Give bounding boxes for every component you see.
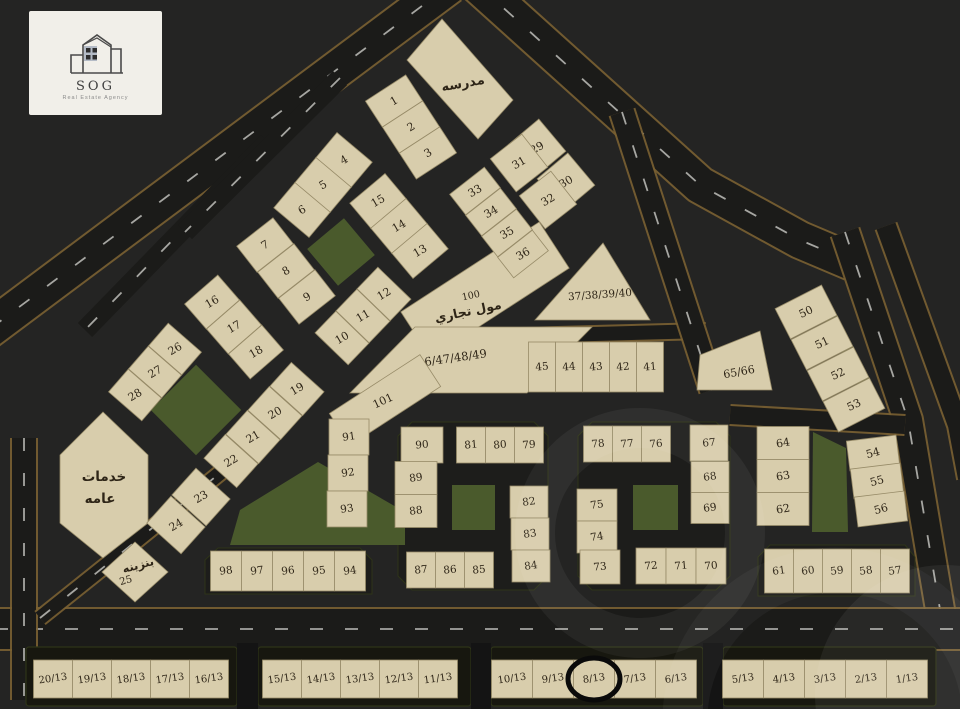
plot-label: 98 xyxy=(219,564,234,578)
road xyxy=(730,415,905,425)
park xyxy=(452,485,495,530)
plot-label: 45 xyxy=(535,360,549,373)
master-plan: مدرسه100مول تجاري46/47/48/4910137/38/39/… xyxy=(0,0,960,709)
plot-label: 44 xyxy=(562,360,577,373)
plot-label: 79 xyxy=(522,438,536,451)
plot-label: 88 xyxy=(409,504,424,518)
plot-label: 75 xyxy=(590,498,605,512)
plot-label: 64 xyxy=(775,435,791,450)
plot-label: 89 xyxy=(409,471,424,485)
plot-label: 86 xyxy=(443,563,458,576)
logo-text: SOG xyxy=(76,79,115,94)
plot-label: 43 xyxy=(589,360,603,373)
park xyxy=(633,485,678,530)
plot-label: 96 xyxy=(281,564,296,578)
logo-tagline: Real Estate Agency xyxy=(62,95,128,101)
plot-label: 87 xyxy=(414,563,428,576)
plot-label: 69 xyxy=(703,501,718,515)
plot-label: 85 xyxy=(472,563,486,576)
plot-label: خدمات xyxy=(82,469,127,485)
plot-label: 97 xyxy=(250,564,265,578)
plot-label: 81 xyxy=(464,438,478,451)
plot-label: 95 xyxy=(312,564,327,578)
plot-label: 94 xyxy=(343,564,358,578)
plot-label: 92 xyxy=(341,466,356,480)
plot-label: 63 xyxy=(775,468,791,483)
plot-label: 42 xyxy=(616,360,630,373)
street-gap xyxy=(237,643,258,709)
logo-card: SOG Real Estate Agency xyxy=(29,11,162,115)
plot-label: 72 xyxy=(644,559,658,572)
plot-label: 62 xyxy=(775,501,791,516)
park xyxy=(812,432,848,532)
plot-label: عامه xyxy=(85,491,116,507)
plot-label: 41 xyxy=(643,360,657,373)
plot-label: 74 xyxy=(590,530,605,544)
street-gap xyxy=(471,643,491,709)
plot-label: 91 xyxy=(342,430,357,444)
plot-label: 70 xyxy=(704,559,718,572)
plot-label: 80 xyxy=(493,438,507,451)
plot-label: 73 xyxy=(593,560,607,573)
building-logo-icon xyxy=(61,25,131,77)
plot-label: 93 xyxy=(340,502,355,516)
plot-label: 90 xyxy=(415,438,429,451)
plot-label: 71 xyxy=(674,559,688,572)
